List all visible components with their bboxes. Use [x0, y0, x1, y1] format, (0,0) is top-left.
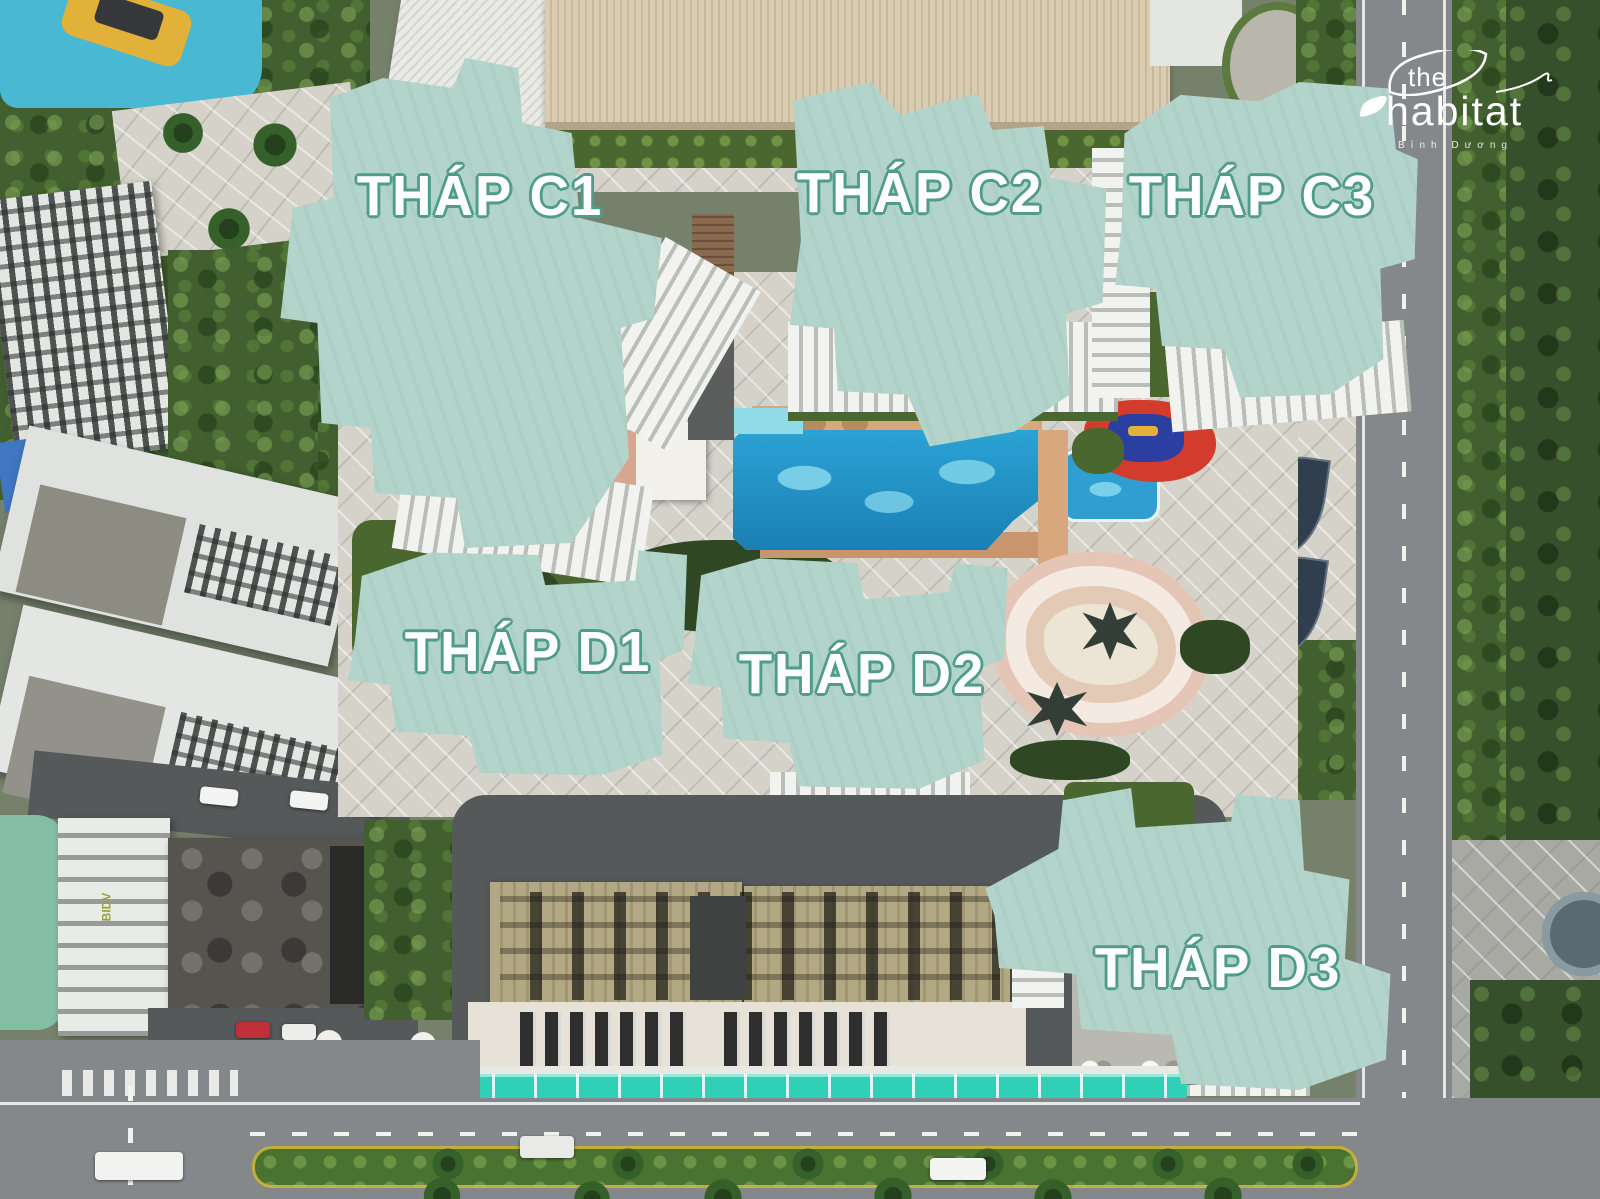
garage-skylights: [500, 892, 1000, 1000]
median-palm: [1150, 1146, 1186, 1182]
palm-tree: [250, 120, 300, 170]
road-edge-line: [1443, 0, 1446, 1199]
car-on-road: [930, 1158, 986, 1180]
logo-name: habitat: [1386, 88, 1523, 135]
rooftop-cars: [724, 1012, 899, 1074]
car-on-road: [95, 1152, 183, 1180]
lane-dashes: [250, 1132, 1360, 1136]
shrubs: [1180, 620, 1250, 674]
logo-swoosh-icon: [1494, 68, 1560, 94]
tower-label-c1: THÁP C1: [357, 163, 604, 229]
playground-toy: [1128, 426, 1158, 436]
garage-gap: [690, 896, 746, 1000]
rooftop-cars: [520, 1012, 695, 1074]
van-on-road: [520, 1136, 574, 1158]
palm-tree: [205, 205, 253, 253]
logo-subtitle: Bình Dương: [1398, 140, 1513, 151]
tower-label-d2: THÁP D2: [739, 641, 986, 707]
tower-label-d3: THÁP D3: [1095, 935, 1342, 1001]
parked-car: [282, 1024, 316, 1040]
road-edge-line: [0, 1102, 1360, 1105]
bidv-green-roof: [0, 815, 66, 1030]
median-palm: [790, 1146, 826, 1182]
red-car: [236, 1022, 270, 1038]
palm-tree: [160, 110, 206, 156]
crosswalk: [62, 1070, 238, 1096]
site-plan-aerial: BIDV: [0, 0, 1600, 1199]
apartment-building-left: [0, 181, 184, 467]
shrubs: [1010, 740, 1130, 780]
tower-label-c2: THÁP C2: [797, 160, 1044, 226]
brand-logo: the habitat Bình Dương: [1352, 56, 1552, 151]
median-palm: [1290, 1146, 1326, 1182]
tower-label-d1: THÁP D1: [405, 619, 652, 685]
median-palm: [610, 1146, 646, 1182]
logo-small-leaf-icon: [1358, 94, 1388, 118]
bidv-sign: BIDV: [99, 893, 113, 922]
garden-mound: [1072, 428, 1124, 474]
bidv-building: [58, 818, 170, 1036]
stop-line-dashes: [128, 1086, 133, 1199]
tower-label-c3: THÁP C3: [1129, 163, 1376, 229]
